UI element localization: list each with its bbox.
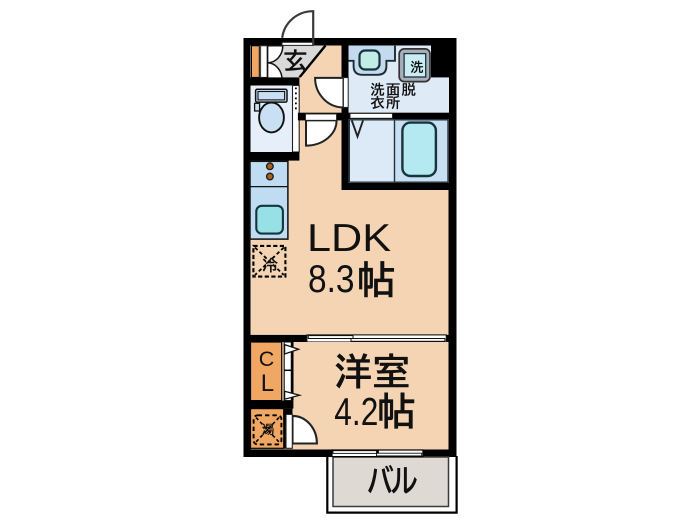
svg-text:4.2: 4.2 xyxy=(334,391,378,434)
svg-text:L: L xyxy=(261,370,274,397)
svg-text:C: C xyxy=(259,347,275,371)
svg-text:8.3: 8.3 xyxy=(308,258,355,301)
svg-text:LDK: LDK xyxy=(307,217,391,260)
